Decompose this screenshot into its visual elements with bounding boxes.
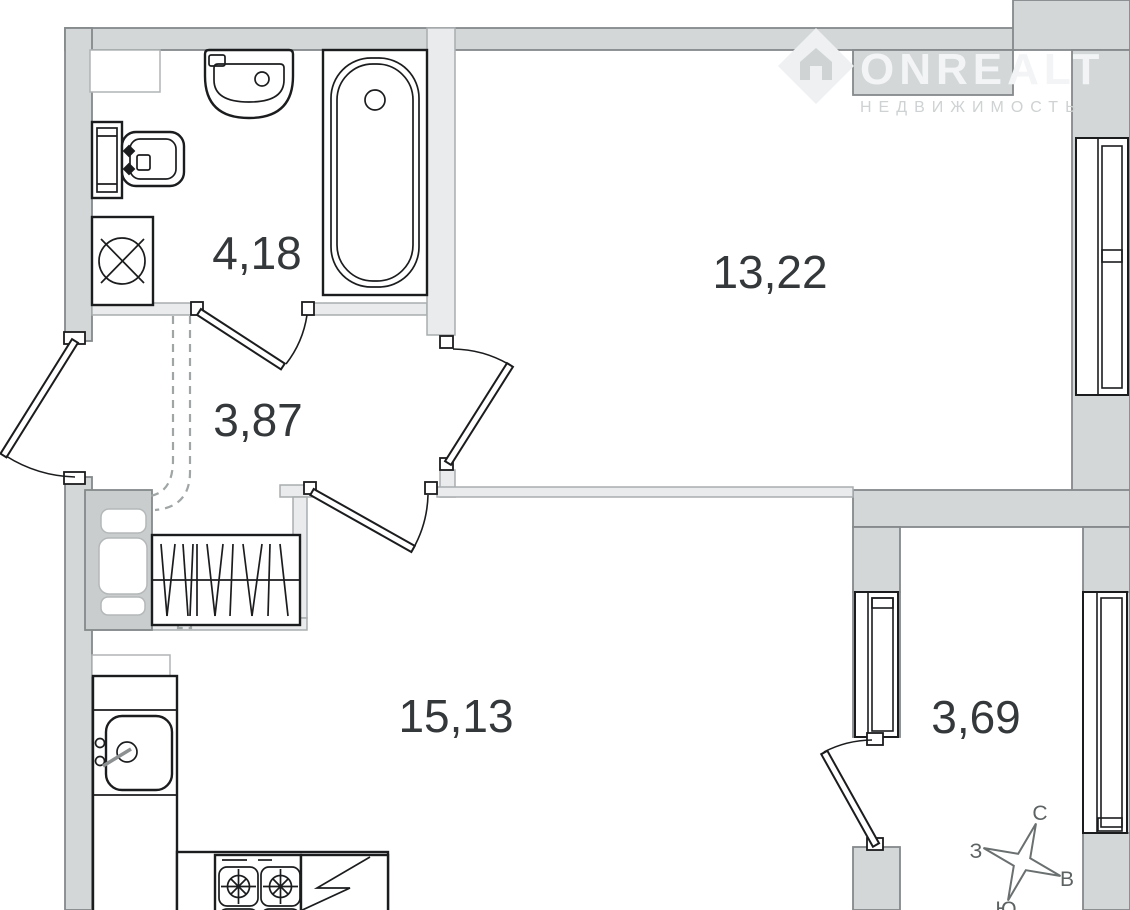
- washing-machine-icon: [92, 217, 153, 305]
- toilet-icon: [92, 122, 184, 198]
- balcony-wall-left-upper: [853, 527, 900, 592]
- brand-logo-house-door: [810, 66, 822, 80]
- floorplan-drawing: ONREALT НЕДВИЖИМОСТЬ: [0, 0, 1130, 910]
- kitchen-door: [304, 482, 437, 552]
- balcony-area-label: 3,69: [931, 691, 1021, 743]
- outer-walls: [65, 0, 1130, 910]
- wall-left-upper: [65, 28, 92, 341]
- hallway-area-label: 3,87: [213, 394, 303, 446]
- refrigerator-icon: [298, 855, 388, 910]
- balcony-window: [1083, 592, 1127, 833]
- riser-pipe: [101, 597, 145, 615]
- brand-name: ONREALT: [860, 45, 1104, 94]
- bathroom-niche: [90, 50, 160, 92]
- livingroom-area-label: 13,22: [712, 246, 827, 298]
- balcony-wall-left-lower: [853, 847, 900, 910]
- balcony-wall-top: [853, 490, 1130, 527]
- balcony-door: [821, 733, 883, 850]
- compass-south-label: Ю: [995, 898, 1016, 910]
- wall-livingroom-kitchen: [437, 487, 853, 497]
- stove-icon: [215, 855, 301, 910]
- bathroom-wall-south-right: [307, 303, 427, 315]
- compass-west-label: З: [970, 840, 983, 863]
- wardrobe-icon: [152, 535, 300, 625]
- duct-shaft: [85, 490, 152, 630]
- balcony-wall-right-upper: [1083, 527, 1130, 592]
- bathroom-door: [191, 302, 314, 369]
- livingroom-window: [1076, 138, 1128, 395]
- kitchen-sink-icon: [96, 716, 173, 790]
- compass-rose: С З В Ю: [970, 802, 1074, 910]
- duct-line: [150, 316, 173, 496]
- floorplan-canvas: ONREALT НЕДВИЖИМОСТЬ: [0, 0, 1130, 910]
- entrance-door: [0, 332, 85, 484]
- kitchen-fixtures: [93, 676, 388, 910]
- riser-pipe: [99, 538, 147, 594]
- bathtub-icon: [323, 50, 427, 295]
- compass-north-label: С: [1032, 802, 1047, 825]
- wall-bathroom-livingroom: [427, 28, 455, 335]
- kitchen-duct-box: [92, 655, 170, 676]
- livingroom-door: [440, 336, 513, 470]
- balcony-wall-right-lower: [1083, 833, 1130, 910]
- wall-corner-block: [1013, 0, 1130, 50]
- compass-star-icon: [984, 824, 1061, 901]
- bathroom-sink-icon: [205, 50, 293, 118]
- bathroom-area-label: 4,18: [212, 227, 302, 279]
- brand-tagline: НЕДВИЖИМОСТЬ: [860, 99, 1083, 116]
- kitchen-area-label: 15,13: [398, 690, 513, 742]
- kitchen-balcony-window: [855, 592, 898, 737]
- riser-pipe: [101, 509, 146, 533]
- compass-east-label: В: [1060, 868, 1074, 891]
